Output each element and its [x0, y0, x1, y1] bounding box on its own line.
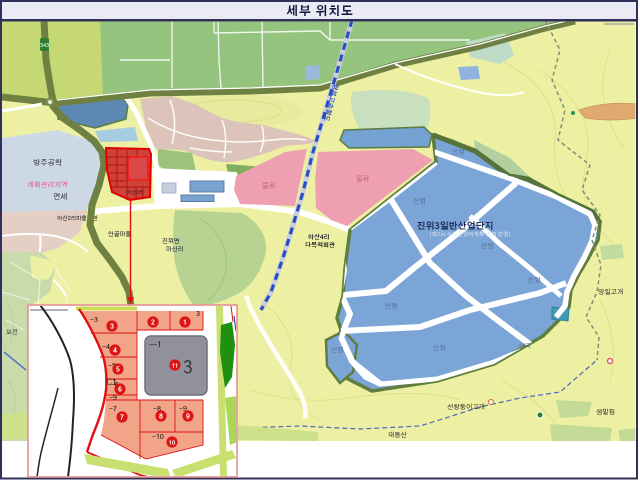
svg-text:안골마을: 안골마을 — [108, 231, 132, 238]
svg-text:진위3일반산업단지: 진위3일반산업단지 — [417, 221, 494, 231]
svg-text:2: 2 — [151, 318, 155, 326]
svg-text:3: 3 — [183, 360, 193, 377]
svg-text:343: 343 — [40, 42, 49, 49]
svg-text:8: 8 — [159, 412, 163, 420]
svg-text:선창둥이고개: 선창둥이고개 — [447, 403, 485, 411]
svg-text:-10: -10 — [152, 433, 164, 441]
svg-text:-4: -4 — [102, 343, 110, 351]
svg-text:방주공학: 방주공학 — [33, 158, 63, 167]
svg-text:(제2차 수도권정비계획 변경 반영): (제2차 수도권정비계획 변경 반영) — [429, 231, 511, 238]
svg-text:-3: -3 — [90, 316, 98, 324]
svg-text:4: 4 — [113, 346, 117, 354]
svg-text:면세: 면세 — [53, 192, 68, 201]
svg-text:물류: 물류 — [262, 182, 276, 190]
svg-text:선곡: 선곡 — [518, 342, 531, 350]
svg-text:산업: 산업 — [452, 148, 465, 156]
svg-text:-9: -9 — [109, 394, 117, 402]
svg-text:산업: 산업 — [331, 346, 344, 354]
svg-text:아산4리: 아산4리 — [308, 233, 329, 241]
svg-text:샘밭집: 샘밭집 — [596, 408, 615, 416]
svg-text:산업: 산업 — [413, 197, 426, 205]
svg-text:산업: 산업 — [481, 242, 494, 250]
svg-text:산업: 산업 — [385, 302, 398, 310]
svg-text:5: 5 — [116, 366, 120, 373]
svg-text:세부 위치도: 세부 위치도 — [286, 4, 354, 18]
svg-text:산업: 산업 — [528, 276, 541, 284]
svg-text:보전: 보전 — [6, 329, 18, 336]
svg-text:1: 1 — [183, 318, 187, 326]
svg-text:-7: -7 — [109, 405, 117, 413]
svg-text:10: 10 — [169, 439, 175, 446]
svg-text:산업: 산업 — [433, 344, 446, 352]
svg-text:다목적회관: 다목적회관 — [305, 241, 335, 249]
svg-text:대동산: 대동산 — [388, 431, 408, 439]
svg-text:7: 7 — [120, 414, 124, 421]
svg-text:9: 9 — [186, 412, 190, 420]
svg-text:3: 3 — [196, 310, 200, 318]
svg-text:11: 11 — [172, 362, 178, 369]
svg-text:마산리: 마산리 — [166, 246, 184, 253]
svg-text:—1: —1 — [149, 340, 162, 349]
svg-text:6: 6 — [118, 385, 122, 393]
svg-text:C1: C1 — [106, 378, 117, 387]
svg-text:물류: 물류 — [356, 175, 370, 183]
svg-text:아산2리: 아산2리 — [126, 189, 144, 196]
svg-text:3: 3 — [110, 322, 114, 330]
svg-text:진위면: 진위면 — [162, 238, 180, 245]
svg-text:계획관리지역: 계획관리지역 — [27, 181, 68, 189]
svg-text:망일고개: 망일고개 — [598, 288, 623, 296]
